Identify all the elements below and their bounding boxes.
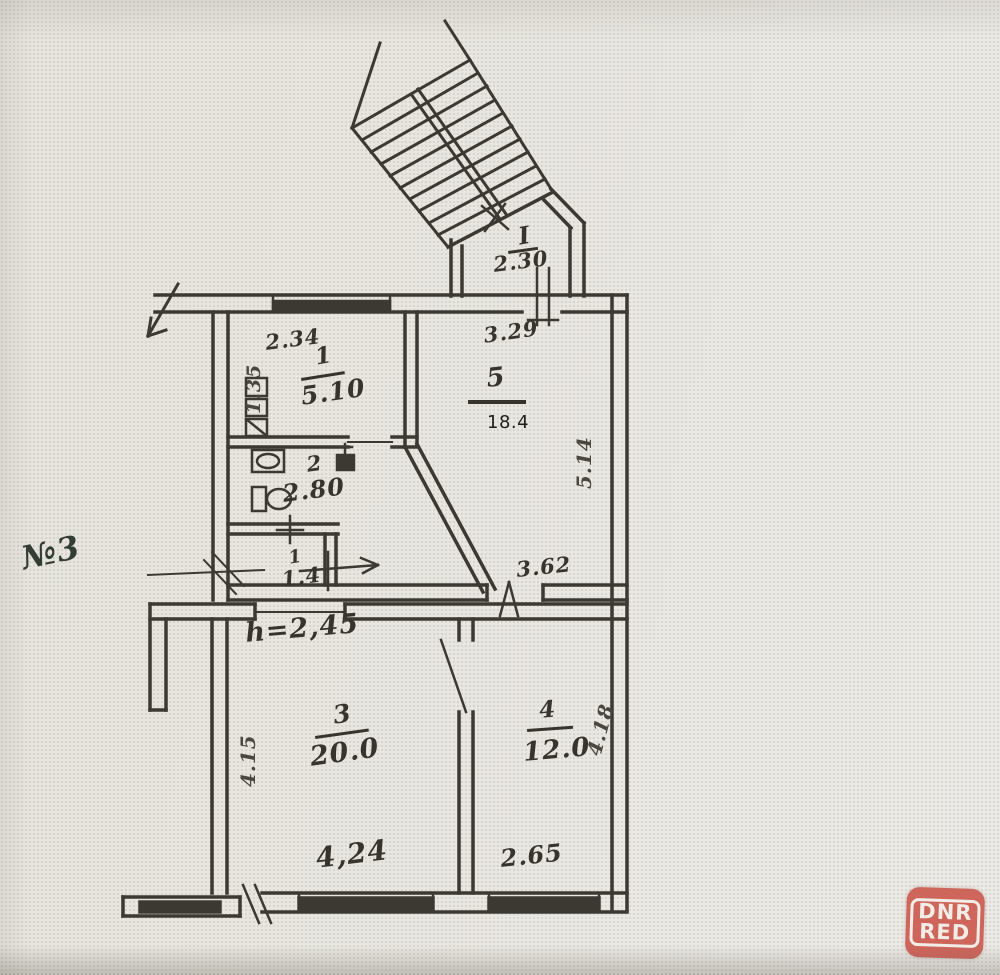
partition-room3-room4 bbox=[441, 619, 473, 893]
watermark-line2: RED bbox=[917, 922, 972, 944]
vestibule-walls bbox=[448, 189, 584, 296]
room4-area: 12.0 bbox=[522, 732, 592, 768]
door-swing-mid bbox=[500, 582, 518, 616]
mid-walls bbox=[150, 585, 627, 619]
room5-right-dim: 5.14 bbox=[572, 436, 596, 489]
dnr-red-badge: DNR RED bbox=[909, 898, 981, 948]
room3-left-dim: 4.15 bbox=[236, 734, 260, 787]
bottom-wall bbox=[262, 893, 627, 912]
section-marks bbox=[148, 552, 264, 594]
room5-fraction-bar bbox=[468, 400, 526, 404]
room5-area: 18.4 bbox=[487, 412, 529, 433]
window-band-room1 bbox=[273, 295, 390, 312]
room4-number: 4 bbox=[538, 696, 557, 724]
partition-room1-room2 bbox=[228, 437, 417, 447]
scanned-floor-plan-photo: №3 I 2.30 3.29 2.34 1.35 1 5.10 2 2.80 1… bbox=[0, 0, 1000, 975]
bottom-wall-left-segment bbox=[123, 897, 240, 916]
dnr-red-watermark: DNR RED bbox=[905, 887, 985, 960]
staircase bbox=[352, 21, 553, 247]
partition-room1-room5 bbox=[405, 312, 495, 592]
bottom-wall-break-marks bbox=[243, 885, 271, 923]
room5-number: 5 bbox=[485, 362, 507, 394]
door-cross-mark bbox=[277, 516, 303, 543]
wall-break-arrow bbox=[148, 284, 178, 336]
room2-number: 2 bbox=[305, 450, 324, 477]
floor-plan-drawing bbox=[0, 0, 1000, 975]
room1-left-dim: 1.35 bbox=[243, 364, 265, 414]
outer-walls-lower bbox=[150, 604, 227, 893]
